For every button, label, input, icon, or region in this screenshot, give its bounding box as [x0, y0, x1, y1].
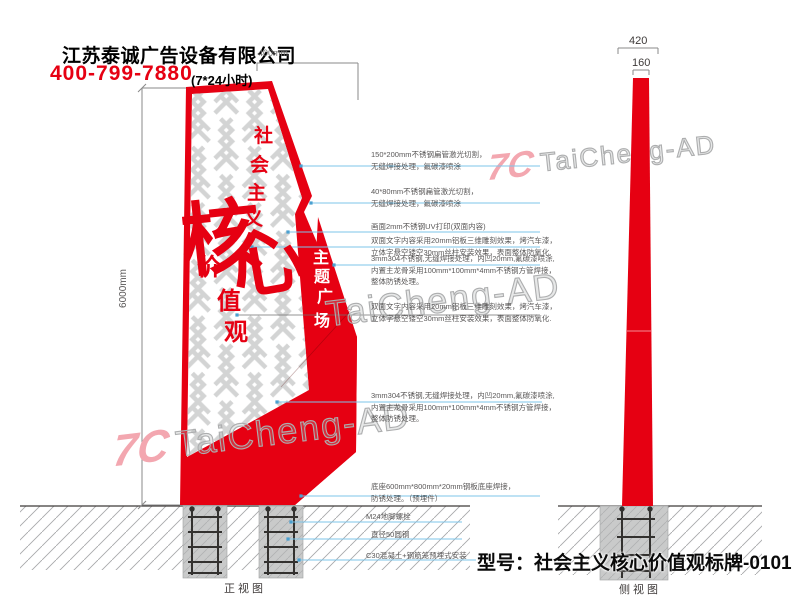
annotation-note: 画面2mm不锈钢UV打印(双面内容) [371, 221, 486, 233]
plaza-char-4: 场 [314, 314, 330, 330]
sign-char-shehuizhuyi-2: 会 [250, 156, 269, 175]
annotation-note: 双面文字内容采用20mm铝板三维雕刻效果，烤汽车漆， 立体字悬空镂空30mm丝柱… [371, 301, 557, 324]
annotation-note: 150*200mm不锈钢扁管激光切割， 无缝焊接处理，氟碳漆喷涂 [371, 149, 486, 172]
annotation-note: M24地脚螺栓 [366, 511, 411, 523]
annotation-note: C30混凝土+钢筋笼预埋式安装 [366, 550, 467, 562]
sign-char-jiazhiguan-3: 观 [224, 321, 248, 345]
sign-char-jiazhiguan-1: 价 [197, 256, 221, 280]
annotation-note: 40*80mm不锈钢扁管激光切割， 无缝焊接处理，氟碳漆喷涂 [371, 186, 478, 209]
plaza-char-3: 广 [317, 290, 333, 306]
front-view-label: 正视图 [224, 580, 266, 596]
model-number: 型号：社会主义核心价值观标牌-0101 [477, 548, 792, 575]
design-drawing-canvas: 7C TaiCheng-AD [0, 0, 800, 600]
dimension-front-height: 6000mm [118, 269, 129, 308]
service-hours-note: (7*24小时) [191, 70, 252, 89]
plaza-char-2: 题 [314, 270, 330, 286]
annotation-note: 3mm304不锈钢,无缝焊接处理，内凹20mm,氟碳漆喷涂, 内置主龙骨采用10… [371, 390, 556, 425]
annotation-note: 直径50圆钢 [371, 529, 409, 541]
side-view-pole [622, 78, 653, 506]
dimension-side-bottom-width: 420 [629, 35, 647, 47]
dimension-side-top-width: 160 [632, 57, 650, 69]
sign-char-jiazhiguan-2: 值 [217, 290, 241, 314]
annotation-note: 底座600mm*800mm*20mm钢板底座焊接， 防锈处理。（预埋件） [371, 481, 515, 504]
phone-number: 400-799-7880 [50, 62, 193, 86]
plaza-char-1: 主 [313, 251, 329, 267]
annotation-note: 3mm304不锈钢,无缝焊接处理，内凹20mm,氟碳漆喷涂, 内置主龙骨采用10… [371, 253, 556, 288]
side-view-label: 侧视图 [619, 581, 661, 597]
sign-char-shehuizhuyi-1: 社 [254, 127, 273, 146]
dimension-front-top-width: 400mm [258, 48, 288, 58]
